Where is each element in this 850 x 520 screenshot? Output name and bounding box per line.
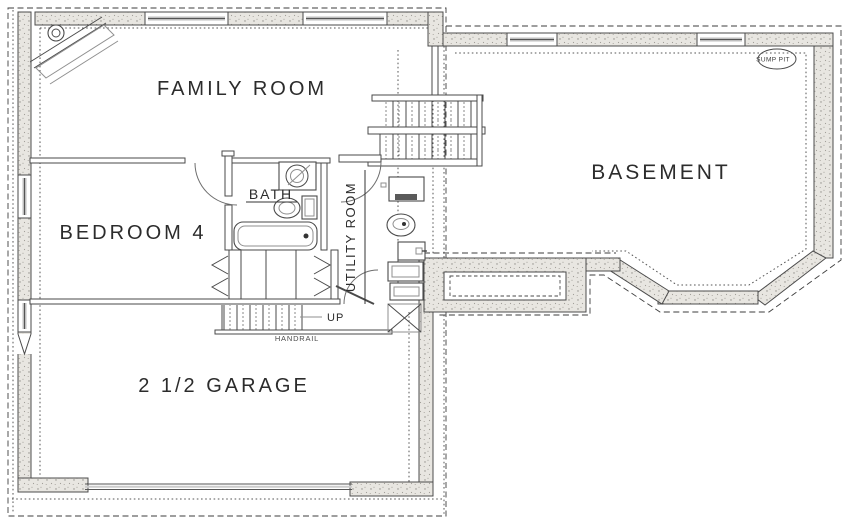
bedroom-south-wall xyxy=(30,299,340,304)
basement-south-wall xyxy=(658,291,758,304)
laundry-tub xyxy=(387,214,415,236)
window xyxy=(507,33,557,46)
garage-door-opening xyxy=(85,484,352,490)
stair-rail-middle xyxy=(368,127,485,134)
furnace xyxy=(381,177,424,201)
x-box-icon xyxy=(388,304,421,332)
garage-stair-treads xyxy=(222,305,302,330)
basement-north-wall xyxy=(443,33,833,46)
bath-label: BATH xyxy=(249,186,293,202)
basement-southeast-chamfer-wall xyxy=(753,251,826,305)
sump-pit-label: SUMP PIT xyxy=(756,57,790,64)
utility-appliance xyxy=(390,283,423,300)
up-label: UP xyxy=(327,312,344,324)
water-heater xyxy=(398,242,427,260)
closet-partition-b xyxy=(266,250,296,299)
bath-east-wall xyxy=(321,163,327,250)
closet-east-jamb xyxy=(331,250,338,299)
stair-rail-lower xyxy=(368,159,482,166)
handrail-label: HANDRAIL xyxy=(275,334,319,343)
window xyxy=(697,33,745,46)
utility-room-label: UTILITY ROOM xyxy=(343,182,358,292)
garage-southeast-wall-block xyxy=(350,482,433,496)
window xyxy=(303,12,387,25)
window xyxy=(18,175,31,218)
stair-rail-upper xyxy=(372,95,483,101)
wall-break-symbol xyxy=(18,334,32,354)
stairwell-north-wall-stub xyxy=(432,46,438,96)
stair-flight-upper-treads xyxy=(382,101,474,127)
north-wall-step-stub xyxy=(428,12,443,46)
bath-west-wall-lower xyxy=(225,205,232,250)
basement-east-wall xyxy=(814,46,833,258)
main-staircase xyxy=(368,95,485,166)
basement-label: BASEMENT xyxy=(591,161,731,184)
utility-door-leaf xyxy=(339,155,381,162)
stair-east-stringer xyxy=(477,95,482,166)
stair-flight-lower-treads xyxy=(378,134,478,159)
closet-partition-a xyxy=(229,250,241,299)
west-wall xyxy=(18,12,31,478)
window xyxy=(145,12,228,25)
bedroom-north-wall xyxy=(30,158,185,163)
floor-plan: FAMILY ROOM BASEMENT BEDROOM 4 2 1/2 GAR… xyxy=(0,0,850,520)
basement-south-stub-wall xyxy=(586,258,620,271)
window xyxy=(18,300,31,332)
garage-southwest-wall-block xyxy=(18,478,88,492)
bedroom4-label: BEDROOM 4 xyxy=(59,222,206,244)
garage-staircase xyxy=(215,305,392,334)
door-jamb-cap xyxy=(222,151,234,156)
floor-plan-canvas: FAMILY ROOM BASEMENT BEDROOM 4 2 1/2 GAR… xyxy=(0,0,850,520)
family-room-label: FAMILY ROOM xyxy=(157,78,327,100)
utility-appliance xyxy=(388,262,423,281)
corner-fireplace-icon xyxy=(30,17,118,84)
garage-label: 2 1/2 GARAGE xyxy=(138,375,310,397)
bathtub xyxy=(234,222,317,250)
bath-west-wall-upper xyxy=(225,156,232,196)
